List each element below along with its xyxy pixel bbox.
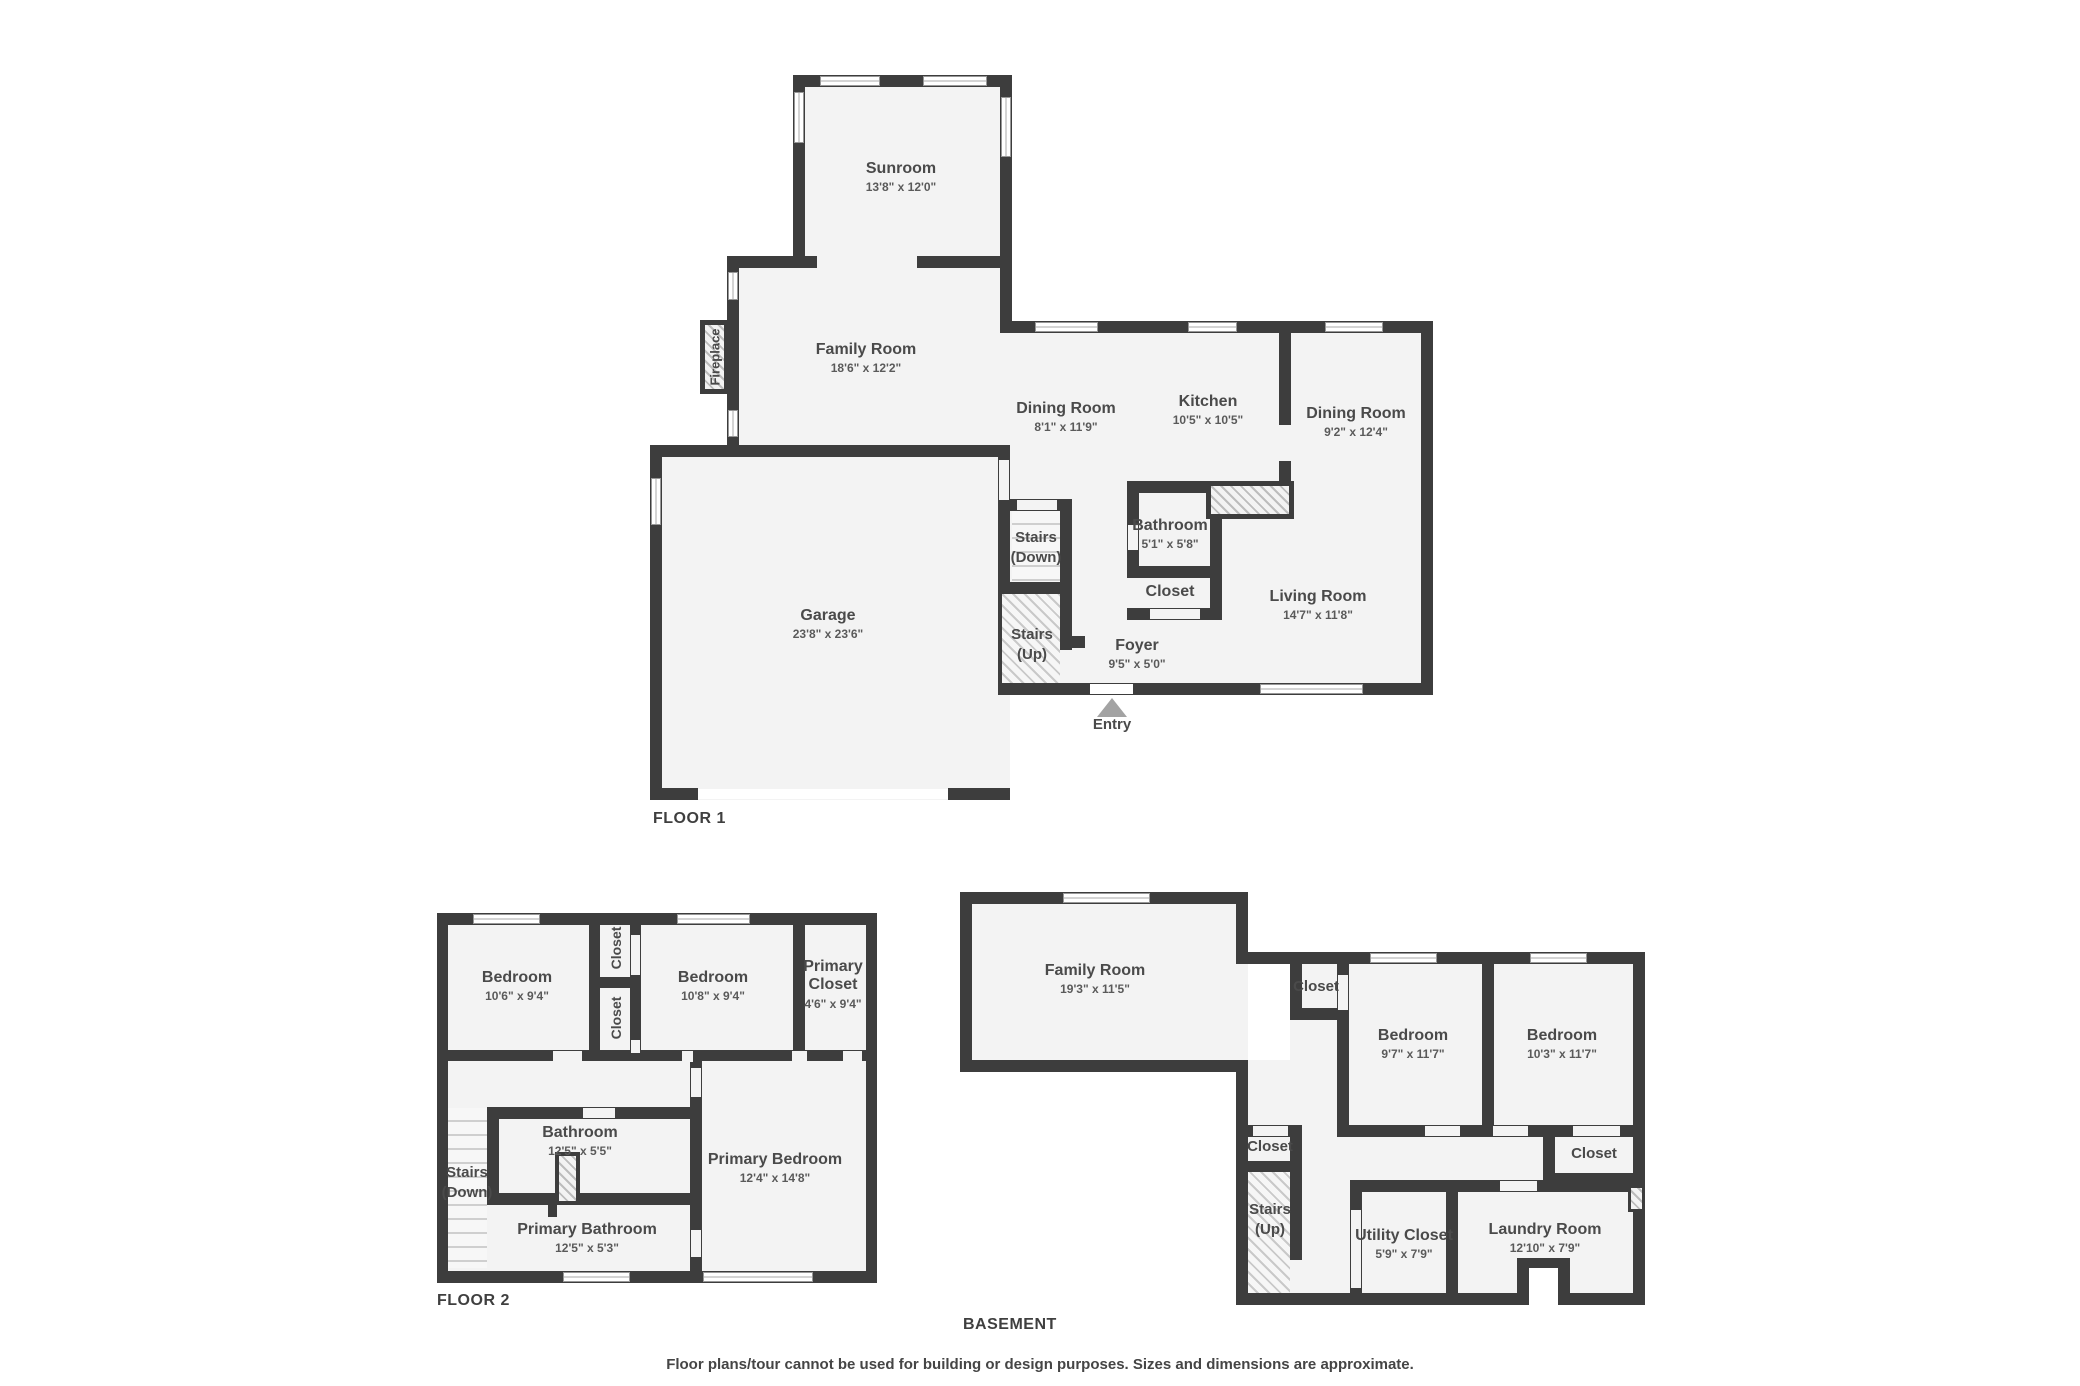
- window: [1063, 893, 1150, 903]
- wall: [1002, 582, 1072, 594]
- wall: [437, 1050, 877, 1061]
- chimney-hatch: [1628, 1185, 1645, 1212]
- door-opening: [1280, 425, 1290, 461]
- room-label-bathroom2: Bathroom 12'5" x 5'5": [542, 1124, 618, 1158]
- room-label-laundry: Laundry Room 12'10" x 7'9": [1489, 1221, 1602, 1255]
- window: [820, 76, 880, 86]
- wall: [548, 1205, 557, 1217]
- room-label-closet-b: Closet: [608, 997, 624, 1040]
- room-label-foyer: Foyer 9'5" x 5'0": [1108, 637, 1165, 671]
- wall: [1517, 1258, 1570, 1268]
- wall: [727, 256, 817, 268]
- door-opening: [1573, 1126, 1620, 1136]
- floorplan-sheet: Sunroom 13'8" x 12'0" Family Room 18'6" …: [0, 0, 2080, 1386]
- wall: [589, 925, 600, 1055]
- door-opening: [631, 935, 640, 975]
- room-label-closet-top: Closet: [1293, 977, 1339, 997]
- window: [1260, 684, 1363, 694]
- room-label-basement-bedroom2: Bedroom 10'3" x 11'7": [1527, 1027, 1597, 1061]
- wall: [589, 977, 641, 988]
- wall: [650, 445, 1010, 457]
- door-opening: [583, 1108, 615, 1118]
- door-opening: [1017, 500, 1057, 510]
- room-label-primary-bathroom: Primary Bathroom 12'5" x 5'3": [517, 1221, 657, 1255]
- window: [1370, 953, 1437, 963]
- window: [1325, 322, 1383, 332]
- wall: [1279, 333, 1291, 425]
- wall: [437, 913, 448, 1283]
- room-label-dining2: Dining Room 9'2" x 12'4": [1306, 405, 1406, 439]
- wall: [948, 788, 1010, 800]
- window: [1035, 322, 1098, 332]
- wall: [1060, 499, 1072, 592]
- wall: [1002, 683, 1433, 695]
- wall: [1248, 1161, 1302, 1172]
- wall: [917, 256, 1012, 268]
- wall: [1127, 566, 1222, 578]
- room-label-utility-closet: Utility Closet 5'9" x 7'9": [1355, 1227, 1453, 1261]
- garage-door-opening: [698, 789, 948, 799]
- window: [728, 272, 738, 300]
- wall: [1290, 1172, 1302, 1260]
- wall: [1236, 1293, 1645, 1305]
- door-opening: [1253, 1126, 1288, 1136]
- room-label-bedroom1: Bedroom 10'6" x 9'4": [482, 969, 552, 1003]
- wall: [1543, 1173, 1645, 1185]
- door-opening: [1338, 975, 1348, 1010]
- room-label-stairs-down: Stairs (Down): [1011, 528, 1062, 567]
- basement-title: BASEMENT: [963, 1316, 1057, 1334]
- room-label-primary-bedroom: Primary Bedroom 12'4" x 14'8": [708, 1151, 842, 1185]
- window: [728, 410, 738, 437]
- door-opening: [1493, 1126, 1528, 1136]
- room-label-closet: Closet: [1146, 583, 1195, 601]
- wall: [1350, 1180, 1458, 1192]
- wall: [1072, 636, 1085, 648]
- door-opening: [1425, 1126, 1460, 1136]
- door-opening: [1500, 1181, 1537, 1191]
- room-label-closet-a: Closet: [608, 927, 624, 970]
- door-opening: [792, 1051, 807, 1062]
- room-label-closet-right: Closet: [1571, 1144, 1617, 1164]
- window: [563, 1272, 630, 1282]
- door-opening: [553, 1051, 582, 1062]
- window: [473, 914, 540, 924]
- room-label-stairs-down2: Stairs (Down): [442, 1163, 493, 1202]
- laundry-nook: [1529, 1268, 1558, 1305]
- room-label-basement-family: Family Room 19'3" x 11'5": [1045, 962, 1145, 996]
- wall: [960, 892, 972, 1072]
- window: [1530, 953, 1587, 963]
- door-opening: [682, 1051, 693, 1062]
- window: [1188, 322, 1237, 332]
- fireplace-label: Fireplace: [708, 328, 723, 385]
- window: [677, 914, 750, 924]
- window: [1001, 97, 1011, 157]
- window: [651, 478, 661, 525]
- entry-door-opening: [1090, 684, 1133, 694]
- wall: [1482, 952, 1494, 1137]
- door-opening: [843, 1051, 862, 1062]
- wall: [650, 788, 698, 800]
- room-label-dining1: Dining Room 8'1" x 11'9": [1016, 400, 1116, 434]
- disclaimer-text: Floor plans/tour cannot be used for buil…: [666, 1356, 1414, 1373]
- room-label-primary-closet: Primary Closet 4'6" x 9'4": [796, 958, 870, 1011]
- entry-label: Entry: [1093, 715, 1131, 735]
- room-label-garage: Garage 23'8" x 23'6": [793, 607, 863, 641]
- wall: [1060, 594, 1072, 650]
- floor1-title: FLOOR 1: [653, 810, 726, 828]
- counter-hatch: [1206, 481, 1294, 519]
- room-label-stairs-up-basement: Stairs (Up): [1249, 1200, 1291, 1239]
- room-label-kitchen: Kitchen 10'5" x 10'5": [1173, 393, 1243, 427]
- room-label-closet-left: Closet: [1247, 1137, 1293, 1157]
- door-opening: [691, 1068, 701, 1097]
- door-opening: [999, 460, 1009, 500]
- wall: [1421, 321, 1433, 695]
- room-label-basement-bedroom1: Bedroom 9'7" x 11'7": [1378, 1027, 1448, 1061]
- door-opening: [691, 1230, 701, 1257]
- window: [794, 92, 804, 143]
- door-opening: [1150, 609, 1200, 619]
- wall: [1236, 1060, 1248, 1305]
- window: [703, 1272, 813, 1282]
- door-opening: [631, 1040, 640, 1053]
- room-label-bedroom2: Bedroom 10'8" x 9'4": [678, 969, 748, 1003]
- room-label-bathroom: Bathroom 5'1" x 5'8": [1132, 517, 1208, 551]
- floor2-title: FLOOR 2: [437, 1292, 510, 1310]
- chimney-hatch: [555, 1152, 580, 1205]
- room-label-living: Living Room 14'7" x 11'8": [1270, 588, 1367, 622]
- window: [923, 76, 987, 86]
- wall: [490, 1193, 702, 1205]
- wall: [960, 1060, 1248, 1072]
- room-label-family: Family Room 18'6" x 12'2": [816, 341, 916, 375]
- room-label-sunroom: Sunroom 13'8" x 12'0": [866, 160, 936, 194]
- room-label-stairs-up: Stairs (Up): [1011, 625, 1053, 664]
